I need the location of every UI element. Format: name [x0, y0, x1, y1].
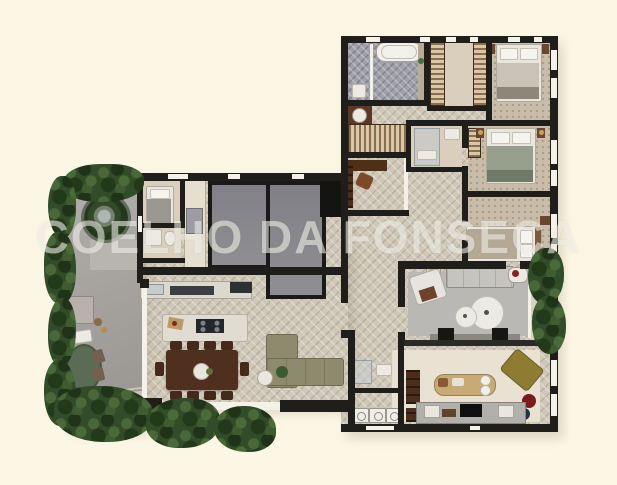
wall-family-living-divider	[404, 340, 550, 346]
dryer	[369, 408, 386, 423]
living-shelf-upper	[406, 370, 420, 404]
window	[551, 140, 557, 164]
bed-1-nightstand-right	[542, 44, 549, 54]
bath-sink	[352, 84, 366, 98]
watermark-text: COELHO DA FONSECA	[0, 210, 617, 264]
closet-wardrobe-left	[430, 42, 445, 106]
island-cooktop	[196, 319, 224, 333]
window	[420, 37, 430, 42]
wall-hallbath-bottom	[406, 167, 466, 172]
dining-chair	[204, 391, 216, 400]
window	[470, 37, 478, 42]
hedge-bottom-3	[214, 406, 276, 452]
hall-vanity-basin	[352, 108, 367, 123]
dining-chair-head	[240, 362, 249, 376]
console-deco-left	[424, 405, 440, 418]
family-sofa	[446, 266, 514, 288]
wall-kitchen-top	[137, 267, 348, 275]
wall-dining-right-upper	[341, 281, 348, 303]
window	[508, 37, 520, 42]
bar-cart-bottle	[512, 270, 519, 277]
island-red-bowl	[172, 321, 177, 326]
wall-bath-closet	[424, 36, 430, 106]
hedge-top-left	[64, 164, 144, 202]
window	[551, 50, 557, 70]
tv	[460, 404, 482, 417]
coffee-table-large-dot	[484, 310, 489, 315]
dining-centerpiece-plant	[206, 368, 213, 375]
wall-bed2-bed3	[468, 191, 558, 197]
window	[470, 426, 480, 430]
window	[551, 170, 557, 186]
coffee-table-small-dot	[463, 314, 467, 318]
hedge-balcony-2	[532, 296, 566, 354]
floorplan-canvas: { "watermark": { "text": "COELHO DA FONS…	[0, 0, 617, 485]
glass-post-top	[140, 279, 149, 288]
service-column-divider	[348, 388, 398, 393]
window	[228, 174, 240, 179]
terrace-chair-north	[73, 329, 93, 344]
hall-shower-bench	[417, 150, 437, 160]
window	[446, 37, 456, 42]
wall-corridor-bedrooms-a	[462, 120, 468, 148]
console-deco-right	[498, 405, 514, 418]
console-deco-wood	[442, 409, 456, 417]
hedge-bottom-2	[146, 398, 220, 448]
wall-laundry-right	[398, 342, 404, 424]
bed-2	[486, 128, 536, 184]
wall-bed1-bottom	[406, 120, 558, 126]
terrace-bowl-2	[101, 327, 107, 333]
terrace-chair-east2	[92, 367, 105, 382]
console-stool-2	[492, 328, 508, 340]
dining-chair	[221, 341, 233, 350]
office-desk	[353, 160, 387, 171]
wall-hallbath-left	[406, 120, 411, 172]
wall-living-left	[348, 336, 355, 432]
terrace-bowl-1	[94, 318, 102, 326]
shower-glass-panel	[370, 44, 373, 100]
bench-pillow-brown	[438, 378, 448, 387]
dining-chair-head	[155, 362, 164, 376]
bench-pillow-cream	[452, 378, 464, 386]
dining-glass-west	[142, 286, 147, 398]
window	[168, 174, 188, 179]
bed-2-lamp-right	[539, 130, 544, 135]
corner-plant	[276, 366, 288, 378]
window	[292, 174, 304, 179]
console-stool-1	[438, 328, 454, 340]
wall-family-left-a	[398, 261, 405, 307]
dining-chair	[187, 341, 199, 350]
bathtub-basin	[381, 45, 417, 59]
bench-cushion-2	[480, 385, 491, 396]
window	[366, 37, 380, 42]
kitchen-stove	[170, 286, 214, 295]
bed-2-lamp-left	[478, 130, 483, 135]
bed-1	[496, 44, 542, 102]
window	[551, 78, 557, 98]
dining-chair	[204, 341, 216, 350]
service-shower-2	[352, 360, 372, 384]
window	[551, 394, 557, 416]
service-fixture	[376, 364, 392, 376]
wall-bath-bottom	[341, 100, 429, 106]
corner-side-table	[257, 370, 273, 386]
window	[551, 360, 557, 386]
hall-shower	[414, 128, 440, 166]
hall-bath-vanity	[444, 128, 460, 140]
window	[534, 37, 542, 42]
hedge-bottom-1	[54, 386, 154, 442]
wall-dining-bottom-right	[280, 400, 348, 412]
wall-closet-bottom	[427, 106, 489, 111]
dining-chair	[221, 391, 233, 400]
window	[366, 426, 394, 430]
dining-chair	[170, 341, 182, 350]
kitchen-hood	[230, 282, 252, 293]
wall-office-top	[341, 152, 409, 158]
